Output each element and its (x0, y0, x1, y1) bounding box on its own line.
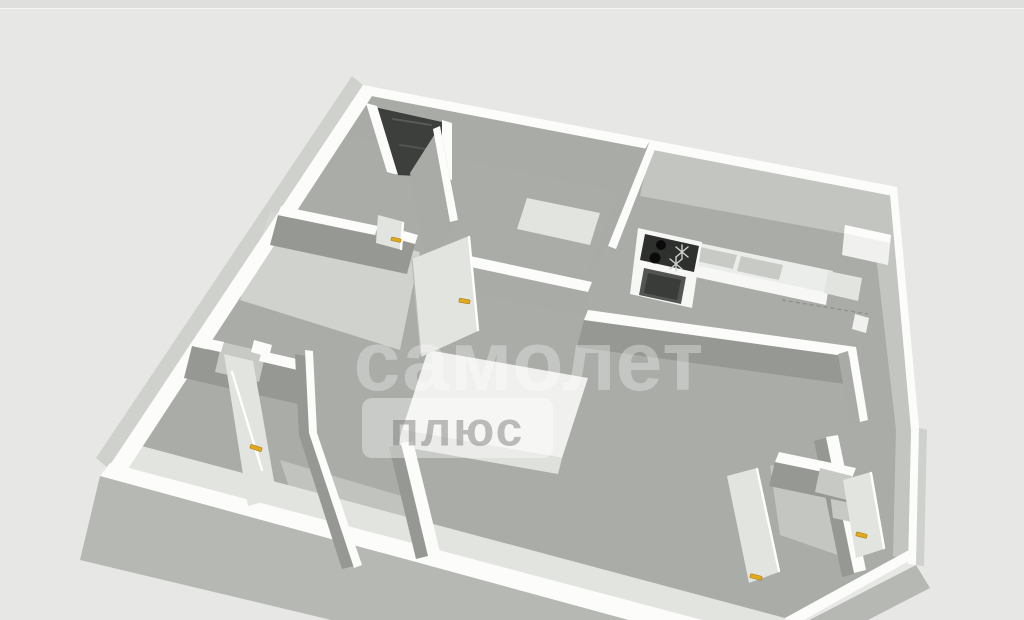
top-strip (0, 0, 1024, 8)
watermark-badge-text: плюс (390, 404, 525, 457)
floorplan-3d-render: самолет плюс (0, 0, 1024, 620)
stove-burner (650, 253, 661, 264)
watermark-brand-text: самолет (354, 314, 705, 408)
floorplan-viewport[interactable]: самолет плюс (0, 0, 1024, 620)
stove-burner (656, 240, 666, 250)
